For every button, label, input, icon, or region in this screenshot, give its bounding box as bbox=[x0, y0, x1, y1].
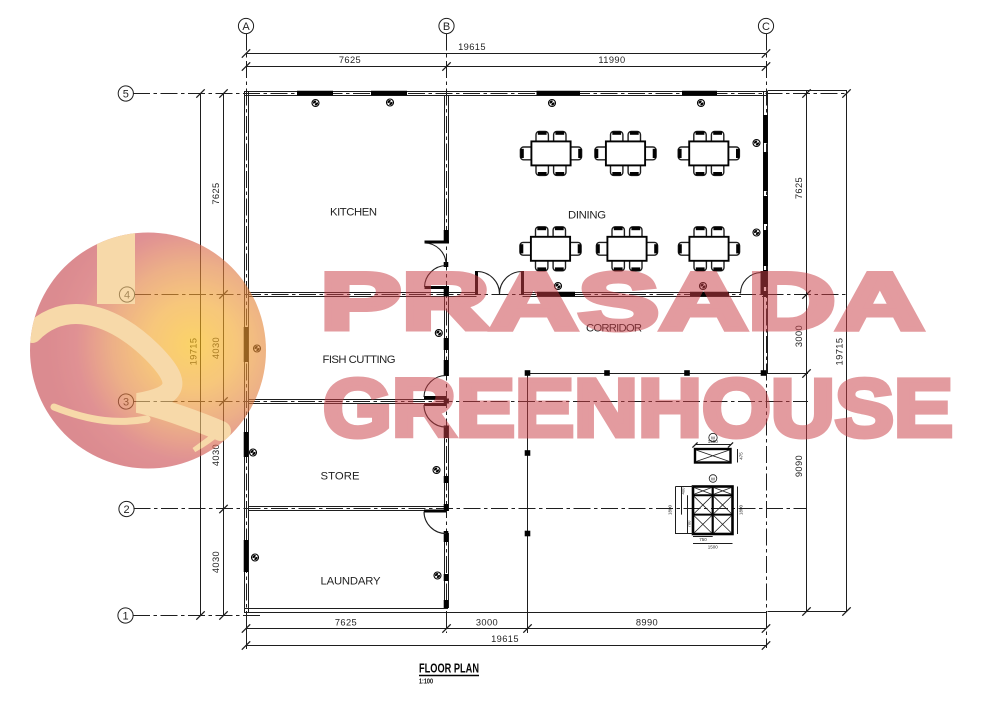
svg-text:2: 2 bbox=[123, 504, 129, 516]
svg-text:7625: 7625 bbox=[211, 182, 221, 204]
svg-text:8990: 8990 bbox=[636, 618, 658, 628]
svg-text:C: C bbox=[762, 21, 770, 33]
svg-text:B: B bbox=[443, 21, 450, 33]
svg-text:7625: 7625 bbox=[339, 55, 361, 65]
svg-text:1800: 1800 bbox=[668, 504, 673, 515]
svg-text:750: 750 bbox=[699, 537, 707, 542]
svg-text:STORE: STORE bbox=[321, 471, 360, 483]
svg-text:3000: 3000 bbox=[476, 618, 498, 628]
svg-text:1: 1 bbox=[122, 610, 128, 622]
svg-text:1800: 1800 bbox=[739, 504, 744, 515]
svg-text:4030: 4030 bbox=[211, 551, 221, 573]
svg-text:19615: 19615 bbox=[491, 634, 519, 644]
svg-text:7625: 7625 bbox=[335, 618, 357, 628]
svg-text:DINING: DINING bbox=[568, 210, 606, 222]
svg-text:19615: 19615 bbox=[458, 42, 486, 52]
svg-text:GREENHOUSE: GREENHOUSE bbox=[323, 363, 953, 454]
svg-text:7625: 7625 bbox=[794, 177, 804, 199]
svg-text:KITCHEN: KITCHEN bbox=[330, 207, 377, 219]
svg-text:11990: 11990 bbox=[598, 55, 625, 65]
svg-text:9090: 9090 bbox=[794, 455, 804, 477]
svg-text:LAUNDARY: LAUNDARY bbox=[321, 576, 381, 588]
svg-text:1500: 1500 bbox=[708, 545, 719, 550]
svg-text:5: 5 bbox=[123, 88, 129, 100]
svg-text:PRASADA: PRASADA bbox=[320, 257, 924, 347]
svg-text:W: W bbox=[711, 477, 716, 482]
svg-text:700: 700 bbox=[687, 520, 692, 528]
svg-text:FLOOR PLAN: FLOOR PLAN bbox=[419, 662, 479, 676]
svg-text:400: 400 bbox=[681, 487, 686, 495]
svg-text:1:100: 1:100 bbox=[419, 679, 433, 686]
svg-text:A: A bbox=[242, 21, 250, 33]
